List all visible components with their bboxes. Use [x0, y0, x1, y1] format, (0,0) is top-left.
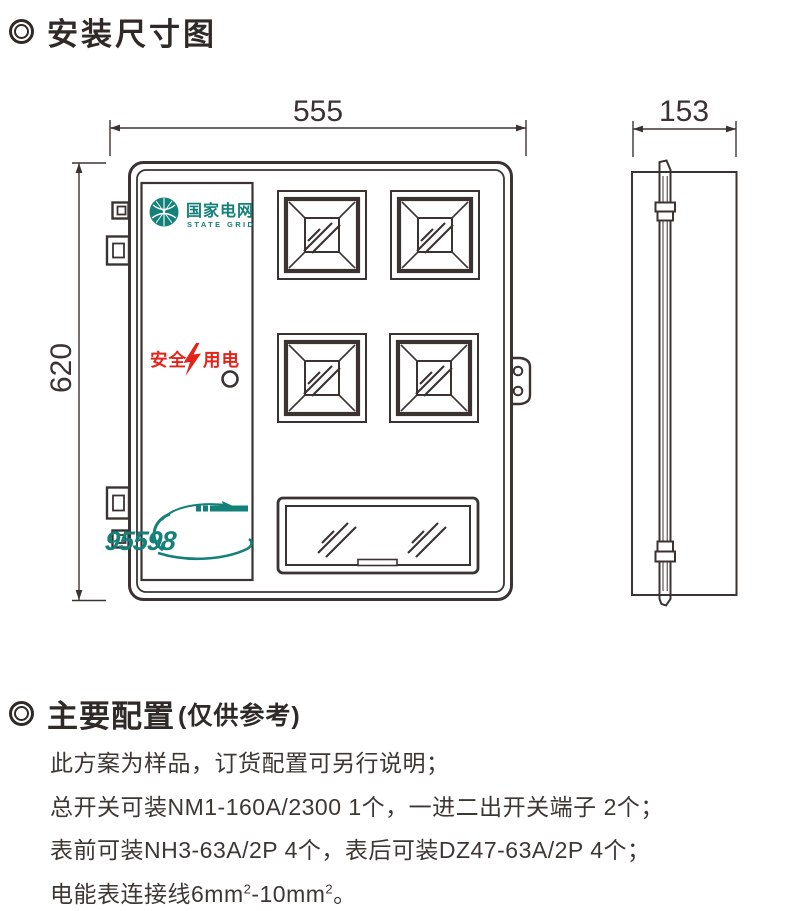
breaker-window	[278, 498, 478, 573]
depth-dimension: 153	[633, 95, 736, 157]
meter-window	[278, 334, 366, 422]
hotline-decoration	[203, 506, 208, 512]
height-dimension: 620	[45, 163, 106, 601]
section-note: (仅供参考)	[178, 696, 301, 732]
superscript: 2	[325, 881, 333, 896]
config-line-3: 表前可装NH3-63A/2P 4个，表后可装DZ47-63A/2P 4个；	[50, 829, 790, 873]
arrow-right-icon	[516, 125, 526, 132]
rod-collar	[656, 552, 676, 562]
safety-label-left: 安全	[150, 350, 187, 370]
catalog-page: 安装尺寸图	[0, 0, 800, 911]
hotline-decoration	[210, 506, 248, 512]
bullseye-icon	[9, 701, 34, 726]
width-dimension-label: 555	[293, 95, 343, 128]
configuration-text: 此方案为样品，订货配置可另行说明； 总开关可装NM1-160A/2300 1个，…	[50, 742, 790, 911]
hotline-decoration	[196, 506, 201, 512]
state-grid-name-en: STATE GRID	[187, 220, 255, 229]
front-view: 国家电网 STATE GRID 安全 用电 95598	[104, 163, 530, 600]
arrow-down-icon	[76, 590, 83, 600]
mounting-hole	[514, 367, 523, 376]
arrow-left-icon	[633, 126, 643, 133]
mounting-hole	[514, 387, 523, 396]
meter-window	[391, 191, 479, 279]
window-latch	[358, 560, 397, 566]
height-dimension-label: 620	[45, 343, 78, 393]
width-dimension: 555	[110, 95, 526, 156]
state-grid-name-zh: 国家电网	[186, 201, 254, 220]
config-line-4: 电能表连接线6mm2-10mm2。	[50, 873, 790, 911]
config-line-4-text: 电能表连接线6mm	[50, 881, 244, 907]
rod-collar	[656, 203, 676, 212]
hinges	[107, 203, 129, 548]
side-body	[632, 172, 737, 595]
arrow-up-icon	[76, 163, 83, 173]
side-view	[632, 161, 737, 606]
config-line-2: 总开关可装NM1-160A/2300 1个，一进二出开关端子 2个；	[50, 786, 790, 830]
lock-hole	[223, 372, 238, 387]
section-title: 主要配置	[47, 691, 175, 736]
state-grid-logo: 国家电网 STATE GRID	[150, 198, 256, 230]
meter-window	[278, 191, 366, 279]
config-line-1: 此方案为样品，订货配置可另行说明；	[50, 742, 790, 786]
mounting-tab	[511, 358, 530, 404]
hotline-number: 95598	[104, 525, 179, 556]
arrow-right-icon	[726, 126, 736, 133]
arrow-left-icon	[110, 125, 120, 132]
safety-label-right: 用电	[203, 350, 240, 370]
depth-dimension-label: 153	[659, 95, 709, 128]
config-line-4-text: 。	[333, 881, 357, 907]
rod-collar	[658, 542, 674, 552]
rod-collar	[658, 212, 674, 221]
config-line-4-text: -10mm	[251, 881, 325, 907]
main-configuration-header: 主要配置 (仅供参考)	[9, 691, 301, 736]
meter-window	[390, 334, 478, 422]
